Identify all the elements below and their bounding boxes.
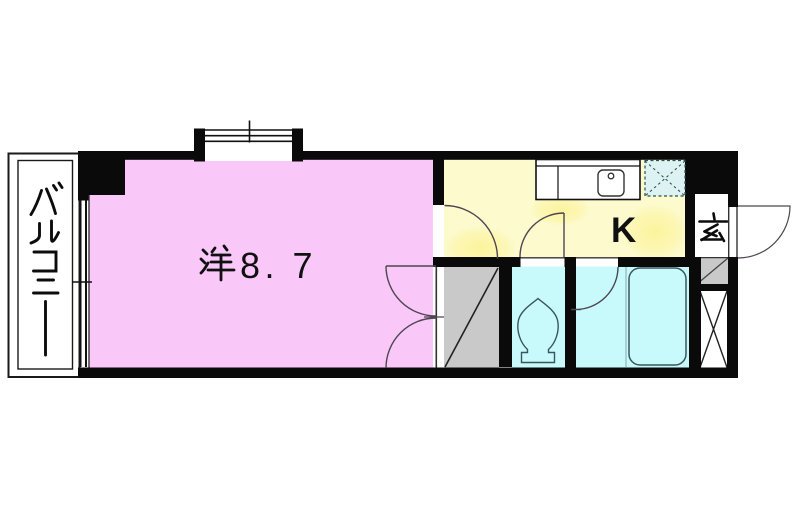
svg-text:K: K (611, 211, 636, 250)
